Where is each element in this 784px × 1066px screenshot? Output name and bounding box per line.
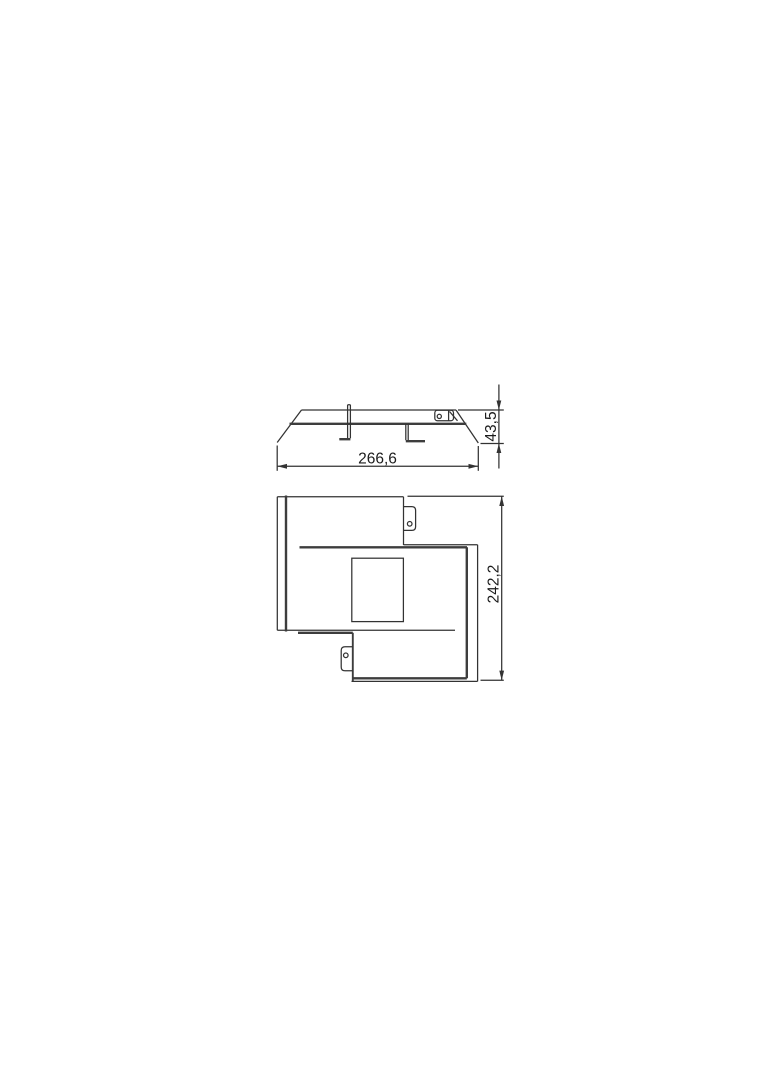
technical-drawing: 266,6 43,5 bbox=[0, 0, 784, 1066]
tab-hole bbox=[407, 522, 412, 527]
leg-vertical-lines bbox=[406, 424, 408, 440]
mounting-tab-top-right bbox=[404, 507, 416, 531]
dimension-width-266: 266,6 bbox=[277, 446, 478, 471]
dimension-value-height: 242,2 bbox=[486, 565, 503, 604]
side-elevation-view: 266,6 43,5 bbox=[277, 385, 504, 471]
clip-hole bbox=[437, 414, 441, 418]
plan-view: 242,2 bbox=[277, 496, 504, 682]
arrowhead-top bbox=[497, 401, 502, 411]
dimension-height-242: 242,2 bbox=[408, 496, 505, 680]
arrowhead-right bbox=[469, 464, 479, 469]
arrowhead-bottom bbox=[499, 671, 504, 681]
side-view-clip-detail bbox=[435, 410, 458, 421]
plan-outer-outline bbox=[277, 497, 477, 682]
tab-body bbox=[404, 507, 416, 531]
dimension-value-width: 266,6 bbox=[358, 451, 397, 468]
dimension-height-43: 43,5 bbox=[458, 385, 504, 469]
arrowhead-bottom bbox=[497, 444, 502, 454]
side-view-right-leg bbox=[406, 424, 425, 441]
arrowhead-left bbox=[277, 464, 287, 469]
leg-seam-nub bbox=[348, 405, 351, 410]
plan-cover-outline bbox=[286, 496, 467, 682]
tab-body bbox=[341, 647, 353, 671]
left-slope-line bbox=[277, 410, 301, 443]
dimension-value-height: 43,5 bbox=[483, 411, 500, 441]
drawing-canvas: 266,6 43,5 bbox=[0, 0, 784, 1066]
central-cutout-rectangle bbox=[352, 558, 404, 621]
arrowhead-top bbox=[499, 496, 504, 506]
right-slope-line bbox=[456, 410, 478, 443]
mounting-tab-bottom-left bbox=[341, 647, 353, 671]
tab-hole bbox=[344, 653, 349, 658]
